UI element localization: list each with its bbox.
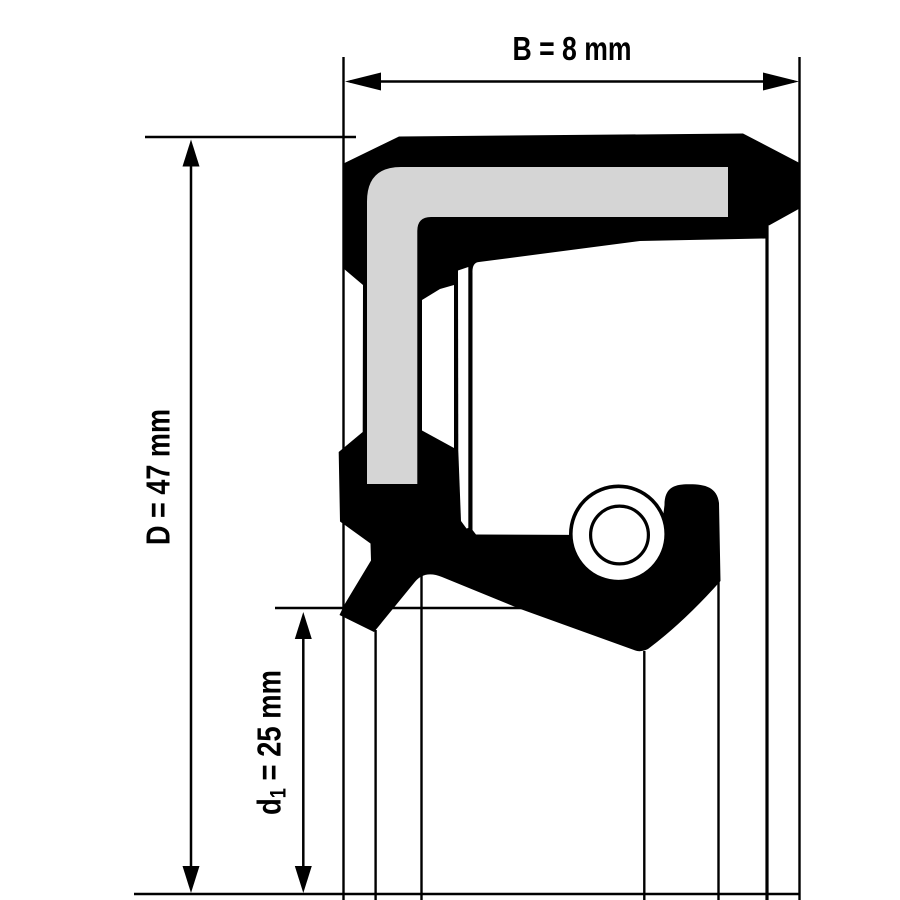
svg-text:D = 47 mm: D = 47 mm — [140, 409, 177, 545]
svg-text:B = 8 mm: B = 8 mm — [513, 30, 632, 67]
